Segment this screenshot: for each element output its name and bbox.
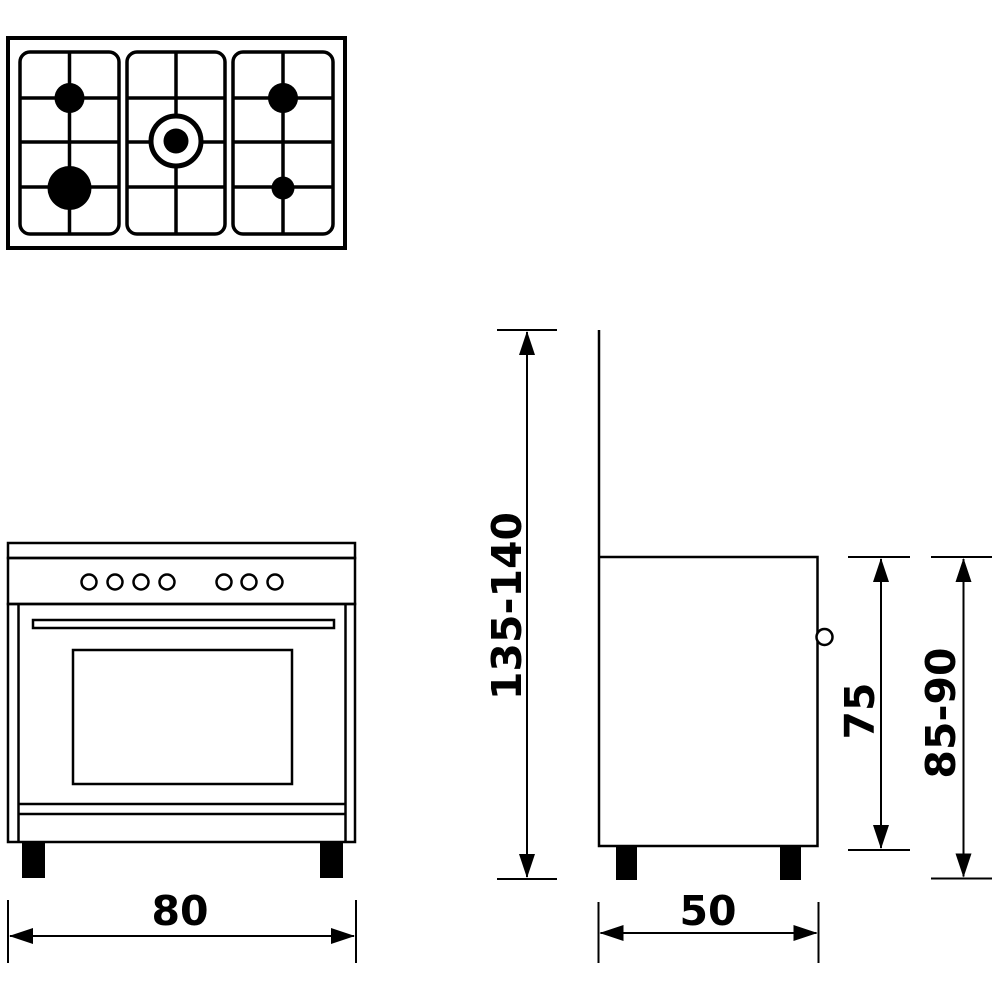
burner-medium-right-top	[268, 83, 298, 113]
control-knob	[108, 575, 123, 590]
control-knob	[160, 575, 175, 590]
dimension-total-height: 135-140	[483, 330, 557, 879]
control-knobs	[82, 575, 283, 590]
foot-front-left	[22, 842, 45, 878]
side-body-outline	[599, 330, 818, 846]
pan-support-right	[233, 52, 333, 234]
dimension-worktop-height: 85-90	[917, 557, 992, 879]
oven-door-window	[73, 650, 292, 784]
cooker-dimension-diagram: 135-140 75 85-90 80 50	[0, 0, 1000, 1000]
control-knob	[217, 575, 232, 590]
control-knob	[134, 575, 149, 590]
control-panel	[8, 558, 355, 604]
control-knob	[242, 575, 257, 590]
dimension-depth: 50	[599, 887, 819, 963]
worktop-edge	[8, 543, 355, 558]
wok-burner-core	[164, 129, 189, 154]
dimension-label-width: 80	[151, 887, 208, 935]
oven-body	[8, 604, 355, 842]
foot-side-right	[780, 846, 801, 880]
dimension-width: 80	[8, 887, 356, 963]
burner-medium-left-top	[55, 83, 85, 113]
front-view	[8, 543, 355, 878]
wok-burner-center	[151, 116, 201, 166]
hob-top-view	[8, 38, 345, 248]
dimension-label-depth: 50	[679, 887, 736, 935]
diagram-svg: 135-140 75 85-90 80 50	[0, 0, 1000, 1000]
foot-front-right	[320, 842, 343, 878]
dimension-label-worktop-height: 85-90	[917, 647, 965, 778]
control-knob	[82, 575, 97, 590]
side-view	[599, 330, 833, 880]
burner-small-right-bottom	[272, 177, 295, 200]
foot-side-left	[616, 846, 637, 880]
door-handle-knob	[817, 629, 833, 645]
oven-door-handle	[33, 620, 334, 628]
dimension-body-height: 75	[836, 557, 910, 850]
dimension-label-total-height: 135-140	[483, 512, 531, 700]
control-knob	[268, 575, 283, 590]
dimension-label-body-height: 75	[836, 682, 884, 739]
burner-large-left-bottom	[48, 166, 92, 210]
